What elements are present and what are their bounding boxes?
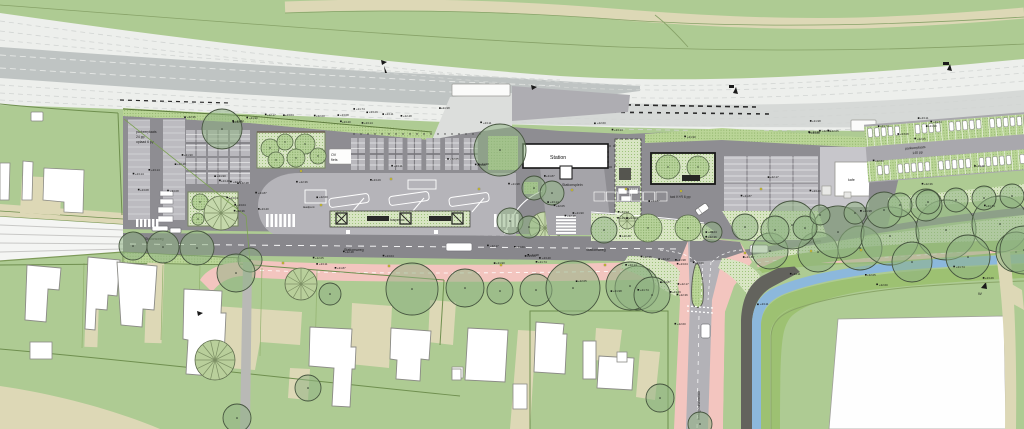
svg-text:+21.98: +21.98 xyxy=(863,209,872,213)
svg-text:+21.87: +21.87 xyxy=(337,266,346,270)
svg-text:fiets: fiets xyxy=(331,158,338,162)
svg-text:+23.11: +23.11 xyxy=(760,302,769,306)
svg-text:+23.40: +23.40 xyxy=(745,255,754,259)
svg-text:+21.87: +21.87 xyxy=(743,194,752,198)
svg-text:kafe: kafe xyxy=(848,178,855,182)
svg-text:+21.74: +21.74 xyxy=(538,260,547,264)
svg-text:+22.36: +22.36 xyxy=(924,182,933,186)
svg-text:+23.11: +23.11 xyxy=(319,262,328,266)
svg-text:+23.08: +23.08 xyxy=(695,261,704,265)
svg-text:+22.36: +22.36 xyxy=(679,293,688,297)
svg-text:+22.48: +22.48 xyxy=(622,234,631,238)
svg-text:+23.11: +23.11 xyxy=(385,112,394,116)
svg-text:+22.05: +22.05 xyxy=(556,204,565,208)
svg-text:+22.05: +22.05 xyxy=(450,157,459,161)
svg-text:+23.04: +23.04 xyxy=(628,187,637,191)
svg-text:+22.60: +22.60 xyxy=(319,195,328,199)
svg-text:+21.87: +21.87 xyxy=(546,174,555,178)
svg-text:+23.04: +23.04 xyxy=(237,203,246,207)
svg-text:+21.98: +21.98 xyxy=(441,106,450,110)
svg-text:+22.48: +22.48 xyxy=(240,181,249,185)
svg-text:Station: Station xyxy=(550,155,566,161)
svg-text:+22.36: +22.36 xyxy=(236,209,245,213)
svg-text:+23.40: +23.40 xyxy=(260,207,269,211)
svg-text:+22.36: +22.36 xyxy=(187,115,196,119)
svg-text:+21.90: +21.90 xyxy=(184,153,193,157)
svg-text:+22.17: +22.17 xyxy=(490,244,499,248)
svg-text:+23.14: +23.14 xyxy=(364,121,373,125)
svg-text:+22.60: +22.60 xyxy=(875,159,884,163)
svg-text:+22.60: +22.60 xyxy=(597,121,606,125)
svg-text:+23.40: +23.40 xyxy=(342,120,351,124)
svg-text:+22.48: +22.48 xyxy=(403,114,412,118)
svg-text:+22.60: +22.60 xyxy=(516,245,525,249)
svg-text:+23.29: +23.29 xyxy=(369,110,378,114)
svg-text:+22.36: +22.36 xyxy=(708,235,717,239)
svg-text:laadpunt: laadpunt xyxy=(303,205,315,209)
svg-text:+21.98: +21.98 xyxy=(677,258,686,262)
svg-text:+23.14: +23.14 xyxy=(151,168,160,172)
svg-text:+23.29: +23.29 xyxy=(985,276,994,280)
svg-text:+23.08: +23.08 xyxy=(900,132,909,136)
svg-text:+21.98: +21.98 xyxy=(613,289,622,293)
svg-text:W: W xyxy=(978,291,982,296)
svg-text:+22.17: +22.17 xyxy=(235,120,244,124)
svg-text:+22.17: +22.17 xyxy=(661,257,670,261)
svg-text:+23.40: +23.40 xyxy=(221,179,230,183)
svg-text:+21.87: +21.87 xyxy=(662,280,671,284)
svg-text:Stationsweg: Stationsweg xyxy=(586,248,606,252)
svg-text:+23.40: +23.40 xyxy=(542,256,551,260)
svg-text:busperron: busperron xyxy=(390,218,405,222)
svg-text:+23.40: +23.40 xyxy=(812,189,821,193)
svg-text:+22.05: +22.05 xyxy=(578,279,587,283)
svg-text:+22.36: +22.36 xyxy=(643,255,652,259)
svg-text:+21.74: +21.74 xyxy=(986,204,995,208)
svg-text:+22.60: +22.60 xyxy=(677,322,686,326)
svg-text:+23.04: +23.04 xyxy=(679,262,688,266)
svg-text:+23.29: +23.29 xyxy=(976,164,985,168)
svg-text:+23.04: +23.04 xyxy=(385,254,394,258)
svg-text:+21.98: +21.98 xyxy=(511,182,520,186)
svg-text:+22.17: +22.17 xyxy=(267,113,276,117)
svg-text:+23.08: +23.08 xyxy=(340,113,349,117)
svg-text:+21.74: +21.74 xyxy=(880,124,889,128)
svg-text:+21.87: +21.87 xyxy=(651,199,660,203)
svg-text:+23.14: +23.14 xyxy=(620,210,629,214)
svg-text:+22.05: +22.05 xyxy=(917,137,926,141)
svg-text:+22.05: +22.05 xyxy=(315,256,324,260)
svg-text:+21.90: +21.90 xyxy=(217,174,226,178)
svg-text:+22.48: +22.48 xyxy=(822,129,831,133)
svg-text:+23.14: +23.14 xyxy=(614,128,623,132)
svg-text:+23.04: +23.04 xyxy=(708,230,717,234)
svg-text:+21.98: +21.98 xyxy=(812,119,821,123)
svg-text:140 pp: 140 pp xyxy=(912,150,923,155)
svg-text:+21.90: +21.90 xyxy=(480,162,489,166)
svg-text:+22.17: +22.17 xyxy=(770,175,779,179)
svg-text:+22.36: +22.36 xyxy=(299,180,308,184)
svg-text:+23.40: +23.40 xyxy=(629,216,638,220)
svg-text:+23.29: +23.29 xyxy=(527,254,536,258)
svg-text:+22.48: +22.48 xyxy=(567,214,576,218)
svg-text:taxi K+R 6 pp: taxi K+R 6 pp xyxy=(670,195,691,199)
svg-text:+22.05: +22.05 xyxy=(867,273,876,277)
svg-text:+23.14: +23.14 xyxy=(135,172,144,176)
svg-text:+22.48: +22.48 xyxy=(177,162,186,166)
svg-text:+23.11: +23.11 xyxy=(394,164,403,168)
svg-text:+23.29: +23.29 xyxy=(372,178,381,182)
svg-text:+23.08: +23.08 xyxy=(620,216,629,220)
svg-text:+22.05: +22.05 xyxy=(830,129,839,133)
svg-text:+22.60: +22.60 xyxy=(879,283,888,287)
svg-text:+23.11: +23.11 xyxy=(792,272,801,276)
svg-text:+21.74: +21.74 xyxy=(356,107,365,111)
svg-text:+23.08: +23.08 xyxy=(811,131,820,135)
svg-text:Stationsplein: Stationsplein xyxy=(562,183,583,187)
svg-text:+21.74: +21.74 xyxy=(956,265,965,269)
svg-text:+23.08: +23.08 xyxy=(140,188,149,192)
svg-text:+21.87: +21.87 xyxy=(258,191,267,195)
svg-text:OV: OV xyxy=(331,153,337,157)
svg-text:+21.90: +21.90 xyxy=(249,116,258,120)
svg-text:+23.08: +23.08 xyxy=(170,189,179,193)
svg-text:+21.90: +21.90 xyxy=(928,124,937,128)
svg-text:+23.14: +23.14 xyxy=(550,200,559,204)
svg-text:+23.11: +23.11 xyxy=(483,121,492,125)
svg-text:+23.04: +23.04 xyxy=(285,113,294,117)
svg-text:+23.11: +23.11 xyxy=(920,116,929,120)
svg-text:24 pp: 24 pp xyxy=(136,135,145,139)
svg-text:+22.17: +22.17 xyxy=(680,282,689,286)
svg-text:+21.74: +21.74 xyxy=(640,288,649,292)
svg-text:+23.14: +23.14 xyxy=(628,263,637,267)
svg-text:+22.48: +22.48 xyxy=(345,250,354,254)
svg-text:+23.04: +23.04 xyxy=(229,196,238,200)
svg-text:+21.90: +21.90 xyxy=(575,211,584,215)
svg-text:+22.60: +22.60 xyxy=(316,114,325,118)
svg-text:+21.90: +21.90 xyxy=(687,135,696,139)
